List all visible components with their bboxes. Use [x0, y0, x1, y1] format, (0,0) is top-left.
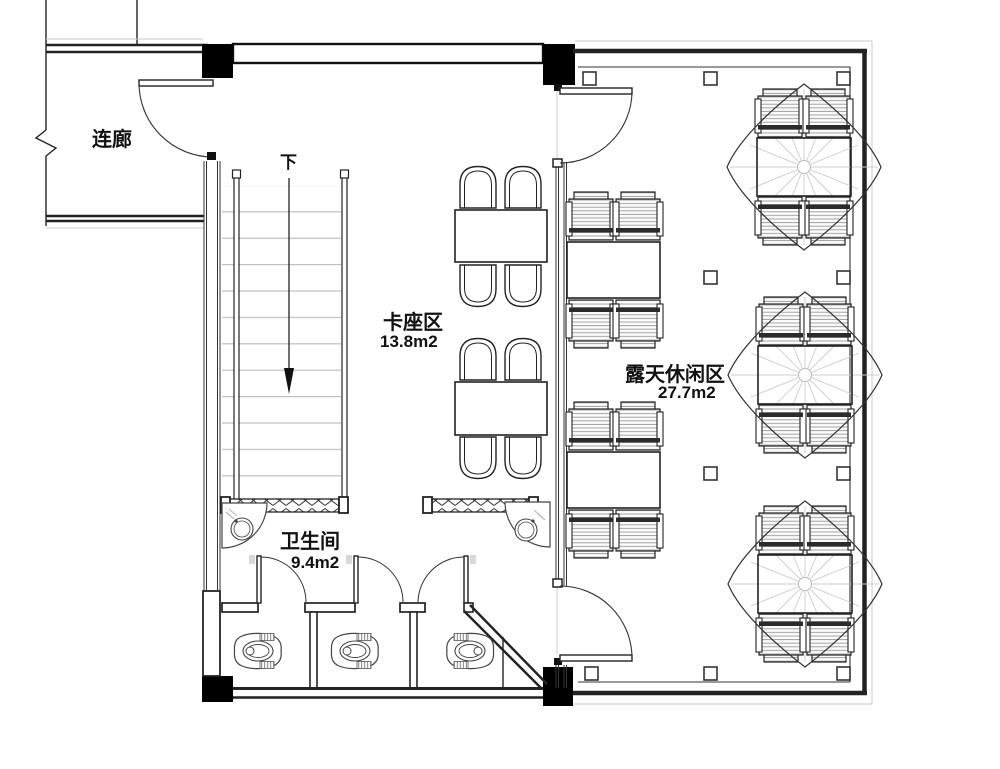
- break-line-symbol: [36, 130, 56, 156]
- glass-door-top: [560, 88, 632, 163]
- stair-rail-right: [342, 172, 347, 502]
- restroom-size: 9.4m2: [291, 553, 339, 572]
- parasol-table-2: [728, 292, 882, 458]
- washbasin-left: [222, 503, 267, 548]
- column-top-right: [543, 44, 575, 85]
- staircase: [222, 170, 349, 502]
- toilet-3: [447, 633, 494, 668]
- glass-door-bottom: [560, 586, 632, 661]
- booth-area-size: 13.8m2: [380, 332, 438, 351]
- restroom: [222, 502, 550, 698]
- stair-steps: [222, 186, 341, 502]
- booth-table-1: [455, 210, 547, 262]
- parasol-table-3: [728, 501, 882, 667]
- stair-rail-left: [234, 172, 239, 502]
- parasol-tables: [727, 84, 882, 667]
- stairs-down-label: 下: [280, 153, 297, 172]
- column-bottom-left: [202, 676, 233, 702]
- top-wall: [233, 44, 543, 63]
- glass-partition: [553, 84, 632, 688]
- hatched-beams: [221, 497, 538, 513]
- left-wall-solid: [203, 591, 220, 676]
- parasol-table-1: [727, 84, 881, 250]
- toilet-2: [331, 633, 378, 668]
- left-glazed-wall: [203, 161, 220, 676]
- booth-table-2: [455, 382, 547, 435]
- entrance-door: [139, 80, 216, 160]
- floor-plan: 连廊 下 卡座区 13.8m2 露天休闲区 27.7m2 卫生间 9.4m2: [0, 0, 1000, 769]
- washbasin-right: [505, 502, 550, 547]
- stall-doors: [249, 555, 476, 603]
- booth-area: [455, 167, 547, 479]
- restroom-bottom-wall: [233, 689, 543, 698]
- restroom-label: 卫生间: [280, 530, 340, 553]
- corridor-label: 连廊: [92, 127, 132, 151]
- floor-plan-drawing: 连廊 下 卡座区 13.8m2 露天休闲区 27.7m2 卫生间 9.4m2: [0, 0, 1000, 769]
- corridor-walls: [36, 0, 208, 228]
- deck-table-2: [567, 452, 660, 508]
- column-top-left: [202, 44, 233, 78]
- toilet-1: [234, 633, 281, 668]
- deck-table-1: [567, 242, 660, 298]
- stall-wall: [222, 603, 425, 612]
- booth-area-label: 卡座区: [383, 310, 443, 334]
- outdoor-area-size: 27.7m2: [658, 383, 716, 402]
